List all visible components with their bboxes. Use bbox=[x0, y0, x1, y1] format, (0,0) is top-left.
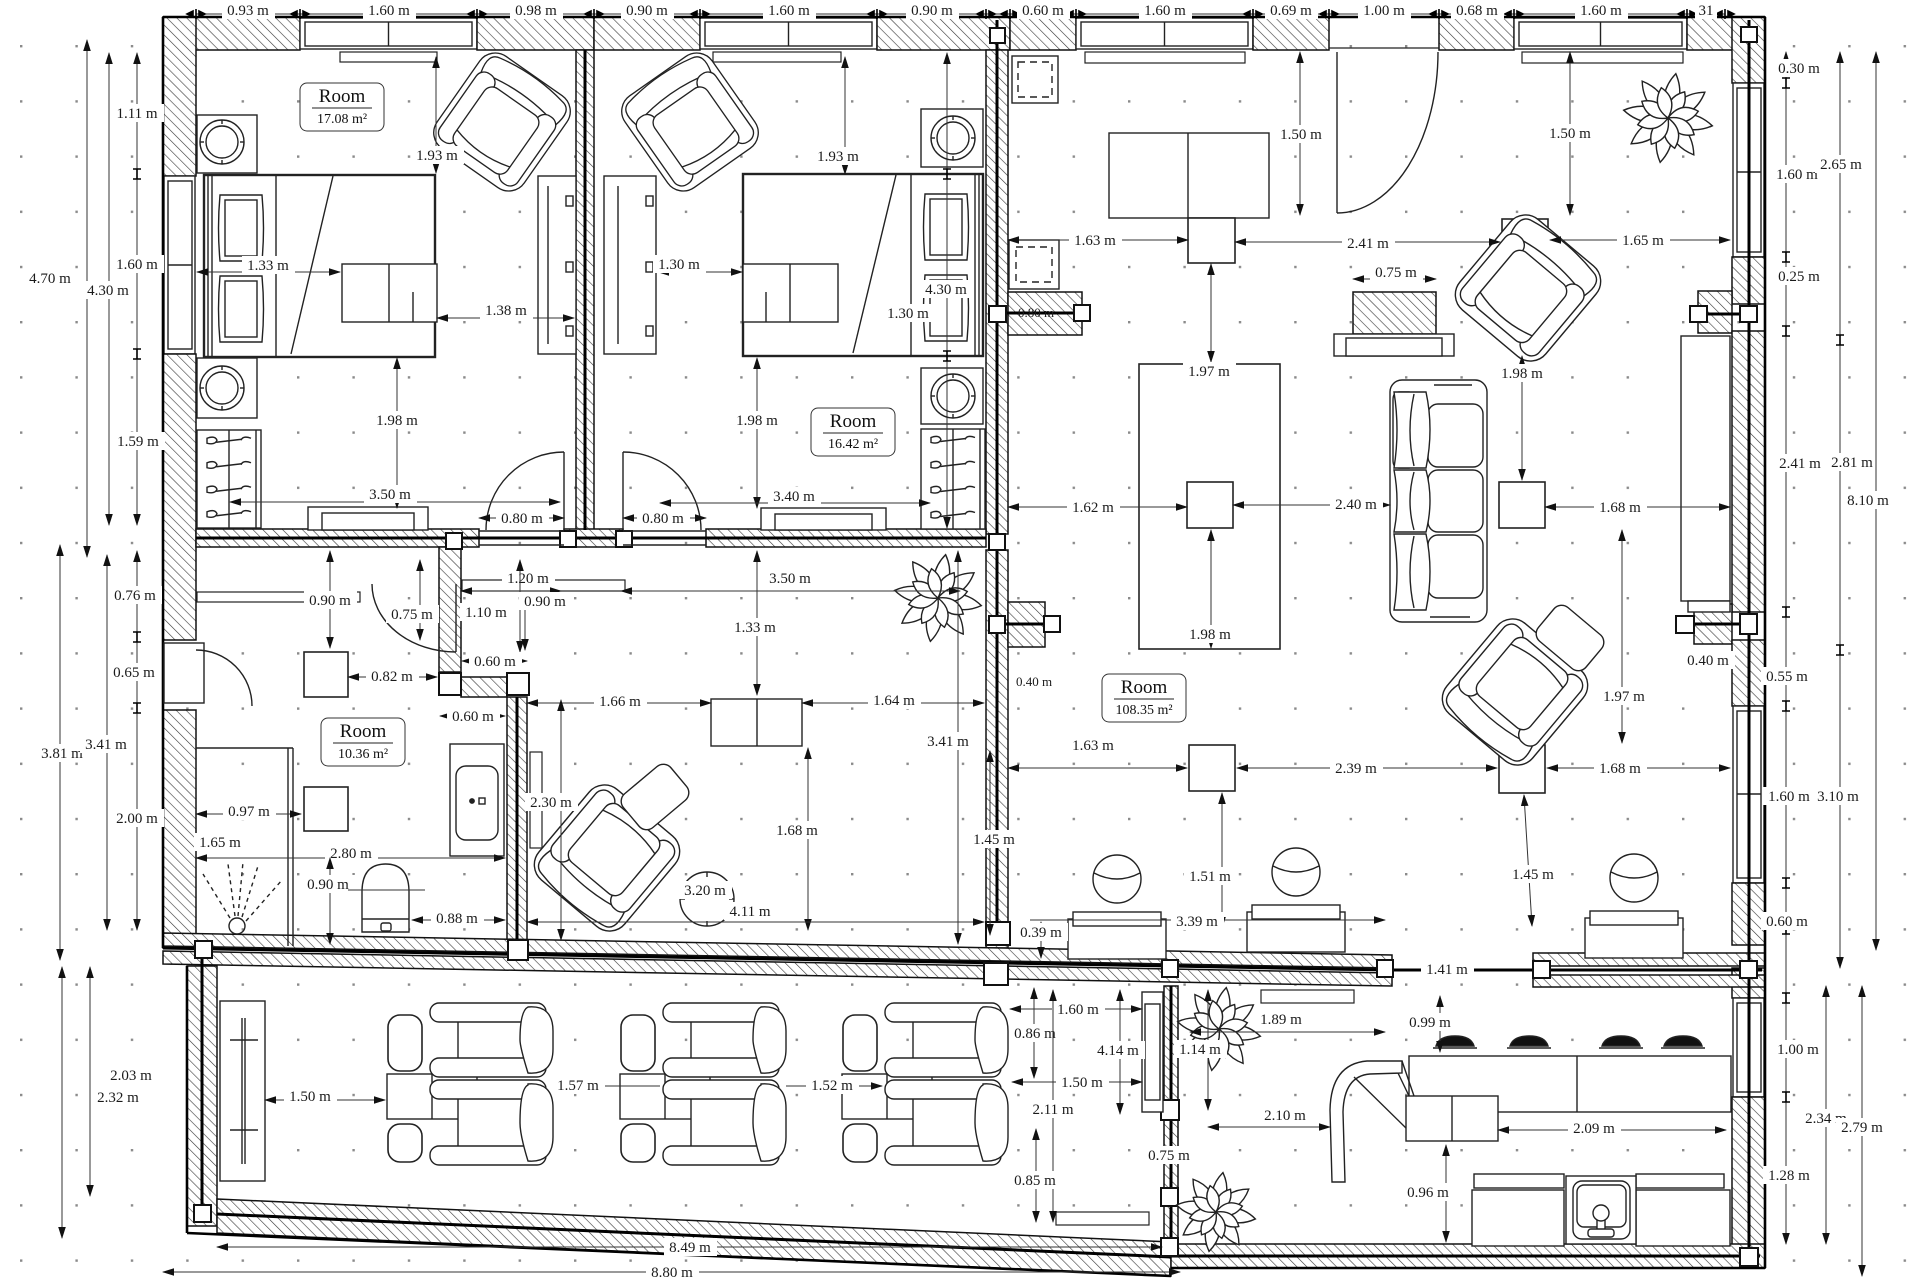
svg-text:1.60 m: 1.60 m bbox=[768, 3, 810, 19]
svg-text:1.11 m: 1.11 m bbox=[116, 106, 157, 122]
svg-text:1.66 m: 1.66 m bbox=[599, 694, 641, 710]
svg-text:1.41 m: 1.41 m bbox=[1426, 962, 1468, 978]
svg-text:1.38 m: 1.38 m bbox=[485, 303, 527, 319]
svg-text:1.60 m: 1.60 m bbox=[1768, 789, 1810, 805]
svg-text:1.89 m: 1.89 m bbox=[1260, 1012, 1302, 1028]
svg-text:4.30 m: 4.30 m bbox=[925, 282, 967, 298]
svg-text:1.65 m: 1.65 m bbox=[199, 835, 241, 851]
svg-text:1.98 m: 1.98 m bbox=[376, 413, 418, 429]
svg-text:0.90 m: 0.90 m bbox=[309, 593, 351, 609]
svg-text:8.10 m: 8.10 m bbox=[1847, 493, 1889, 509]
svg-text:1.68 m: 1.68 m bbox=[1599, 500, 1641, 516]
svg-text:8.49 m: 8.49 m bbox=[669, 1240, 711, 1256]
svg-text:Room: Room bbox=[340, 721, 387, 742]
svg-text:0.68 m: 0.68 m bbox=[1456, 3, 1498, 19]
svg-text:1.50 m: 1.50 m bbox=[289, 1089, 331, 1105]
svg-text:0.75 m: 0.75 m bbox=[1148, 1148, 1190, 1164]
svg-text:1.57 m: 1.57 m bbox=[557, 1078, 599, 1094]
svg-text:1.98 m: 1.98 m bbox=[1189, 627, 1231, 643]
svg-text:3.50 m: 3.50 m bbox=[369, 487, 411, 503]
svg-text:0.85 m: 0.85 m bbox=[1014, 1173, 1056, 1189]
svg-text:2.10 m: 2.10 m bbox=[1264, 1108, 1306, 1124]
svg-text:16.42 m²: 16.42 m² bbox=[828, 437, 878, 452]
svg-text:2.03 m: 2.03 m bbox=[110, 1068, 152, 1084]
svg-text:2.65 m: 2.65 m bbox=[1820, 157, 1862, 173]
svg-text:1.52 m: 1.52 m bbox=[811, 1078, 853, 1094]
svg-text:Room: Room bbox=[1121, 677, 1168, 698]
svg-text:0.69 m: 0.69 m bbox=[1270, 3, 1312, 19]
svg-text:1.98 m: 1.98 m bbox=[736, 413, 778, 429]
svg-text:4.14 m: 4.14 m bbox=[1097, 1043, 1139, 1059]
svg-text:1.68 m: 1.68 m bbox=[776, 823, 818, 839]
svg-text:0.60 m: 0.60 m bbox=[1022, 3, 1064, 19]
svg-text:2.81 m: 2.81 m bbox=[1831, 455, 1873, 471]
svg-text:0.65 m: 0.65 m bbox=[113, 665, 155, 681]
svg-text:1.50 m: 1.50 m bbox=[1549, 126, 1591, 142]
svg-text:2.41 m: 2.41 m bbox=[1779, 456, 1821, 472]
svg-text:10.36 m²: 10.36 m² bbox=[338, 747, 388, 762]
svg-text:0.88 m: 0.88 m bbox=[436, 911, 478, 927]
svg-text:0.98 m: 0.98 m bbox=[515, 3, 557, 19]
svg-text:1.93 m: 1.93 m bbox=[416, 148, 458, 164]
svg-text:1.00 m: 1.00 m bbox=[1363, 3, 1405, 19]
svg-text:1.68 m: 1.68 m bbox=[1599, 761, 1641, 777]
svg-text:0.90 m: 0.90 m bbox=[524, 594, 566, 610]
svg-text:1.60 m: 1.60 m bbox=[116, 257, 158, 273]
svg-text:1.60 m: 1.60 m bbox=[1580, 3, 1622, 19]
svg-text:2.30 m: 2.30 m bbox=[530, 795, 572, 811]
svg-text:0.39 m: 0.39 m bbox=[1020, 925, 1062, 941]
svg-text:0.60 m: 0.60 m bbox=[1766, 914, 1808, 930]
svg-text:0.30 m: 0.30 m bbox=[1778, 61, 1820, 77]
svg-text:2.39 m: 2.39 m bbox=[1335, 761, 1377, 777]
svg-text:1.45 m: 1.45 m bbox=[1512, 867, 1554, 883]
svg-text:1.64 m: 1.64 m bbox=[873, 693, 915, 709]
svg-text:31: 31 bbox=[1699, 3, 1714, 19]
svg-text:0.75 m: 0.75 m bbox=[391, 607, 433, 623]
svg-text:0.76 m: 0.76 m bbox=[114, 588, 156, 604]
svg-text:0.90 m: 0.90 m bbox=[307, 877, 349, 893]
svg-text:0.93 m: 0.93 m bbox=[227, 3, 269, 19]
svg-text:0.80 m: 0.80 m bbox=[642, 511, 684, 527]
svg-text:1.20 m: 1.20 m bbox=[507, 571, 549, 587]
svg-text:1.63 m: 1.63 m bbox=[1072, 738, 1114, 754]
svg-text:0.75 m: 0.75 m bbox=[1375, 265, 1417, 281]
svg-text:0.55 m: 0.55 m bbox=[1766, 669, 1808, 685]
svg-text:1.28 m: 1.28 m bbox=[1768, 1168, 1810, 1184]
svg-text:2.40 m: 2.40 m bbox=[1335, 497, 1377, 513]
svg-text:1.45 m: 1.45 m bbox=[973, 832, 1015, 848]
svg-text:1.33 m: 1.33 m bbox=[734, 620, 776, 636]
svg-text:0.80 m: 0.80 m bbox=[501, 511, 543, 527]
svg-text:3.41 m: 3.41 m bbox=[85, 737, 127, 753]
svg-text:0.86 m: 0.86 m bbox=[1014, 1026, 1056, 1042]
svg-text:1.97 m: 1.97 m bbox=[1188, 364, 1230, 380]
svg-text:4.11 m: 4.11 m bbox=[729, 904, 770, 920]
svg-text:1.50 m: 1.50 m bbox=[1061, 1075, 1103, 1091]
svg-text:1.98 m: 1.98 m bbox=[1501, 366, 1543, 382]
svg-text:1.00 m: 1.00 m bbox=[1777, 1042, 1819, 1058]
svg-text:3.50 m: 3.50 m bbox=[769, 571, 811, 587]
svg-text:108.35 m²: 108.35 m² bbox=[1115, 703, 1172, 718]
svg-text:3.20 m: 3.20 m bbox=[684, 883, 726, 899]
svg-text:1.60 m: 1.60 m bbox=[1776, 167, 1818, 183]
svg-text:Room: Room bbox=[319, 86, 366, 107]
svg-text:0.90 m: 0.90 m bbox=[911, 3, 953, 19]
svg-text:1.62 m: 1.62 m bbox=[1072, 500, 1114, 516]
svg-text:2.80 m: 2.80 m bbox=[330, 846, 372, 862]
svg-text:0.60 m: 0.60 m bbox=[452, 709, 494, 725]
svg-text:2.41 m: 2.41 m bbox=[1347, 236, 1389, 252]
svg-text:1.14 m: 1.14 m bbox=[1179, 1042, 1221, 1058]
svg-text:1.60 m: 1.60 m bbox=[368, 3, 410, 19]
svg-text:2.79 m: 2.79 m bbox=[1841, 1120, 1883, 1136]
svg-text:2.11 m: 2.11 m bbox=[1032, 1102, 1073, 1118]
svg-text:0.82 m: 0.82 m bbox=[371, 669, 413, 685]
svg-text:1.10 m: 1.10 m bbox=[465, 605, 507, 621]
svg-text:1.51 m: 1.51 m bbox=[1189, 869, 1231, 885]
svg-text:1.50 m: 1.50 m bbox=[1280, 127, 1322, 143]
svg-text:2.32 m: 2.32 m bbox=[97, 1090, 139, 1106]
svg-text:4.70 m: 4.70 m bbox=[29, 271, 71, 287]
svg-text:1.97 m: 1.97 m bbox=[1603, 689, 1645, 705]
svg-text:1.63 m: 1.63 m bbox=[1074, 233, 1116, 249]
svg-text:1.59 m: 1.59 m bbox=[117, 434, 159, 450]
svg-text:1.33 m: 1.33 m bbox=[247, 258, 289, 274]
svg-text:1.30 m: 1.30 m bbox=[658, 257, 700, 273]
svg-text:4.30 m: 4.30 m bbox=[87, 283, 129, 299]
svg-text:0.99 m: 0.99 m bbox=[1409, 1015, 1451, 1031]
svg-text:3.40 m: 3.40 m bbox=[773, 489, 815, 505]
svg-text:3.81 m: 3.81 m bbox=[41, 746, 83, 762]
svg-text:0.40 m: 0.40 m bbox=[1687, 653, 1729, 669]
svg-text:1.60 m: 1.60 m bbox=[1144, 3, 1186, 19]
svg-text:3.39 m: 3.39 m bbox=[1176, 914, 1218, 930]
svg-text:3.41 m: 3.41 m bbox=[927, 734, 969, 750]
svg-text:2.09 m: 2.09 m bbox=[1573, 1121, 1615, 1137]
svg-text:1.30 m: 1.30 m bbox=[887, 306, 929, 322]
svg-text:8.80 m: 8.80 m bbox=[651, 1265, 693, 1280]
svg-text:0.96 m: 0.96 m bbox=[1407, 1185, 1449, 1201]
svg-text:1.65 m: 1.65 m bbox=[1622, 233, 1664, 249]
svg-text:0.80 m: 0.80 m bbox=[1018, 305, 1054, 320]
svg-text:0.25 m: 0.25 m bbox=[1778, 269, 1820, 285]
svg-text:0.90 m: 0.90 m bbox=[626, 3, 668, 19]
svg-text:1.93 m: 1.93 m bbox=[817, 149, 859, 165]
svg-text:17.08 m²: 17.08 m² bbox=[317, 112, 367, 127]
svg-text:3.10 m: 3.10 m bbox=[1817, 789, 1859, 805]
svg-text:0.40 m: 0.40 m bbox=[1016, 674, 1052, 689]
svg-text:0.97 m: 0.97 m bbox=[228, 804, 270, 820]
svg-text:Room: Room bbox=[830, 411, 877, 432]
svg-text:1.60 m: 1.60 m bbox=[1057, 1002, 1099, 1018]
svg-text:2.00 m: 2.00 m bbox=[116, 811, 158, 827]
svg-text:0.60 m: 0.60 m bbox=[474, 654, 516, 670]
